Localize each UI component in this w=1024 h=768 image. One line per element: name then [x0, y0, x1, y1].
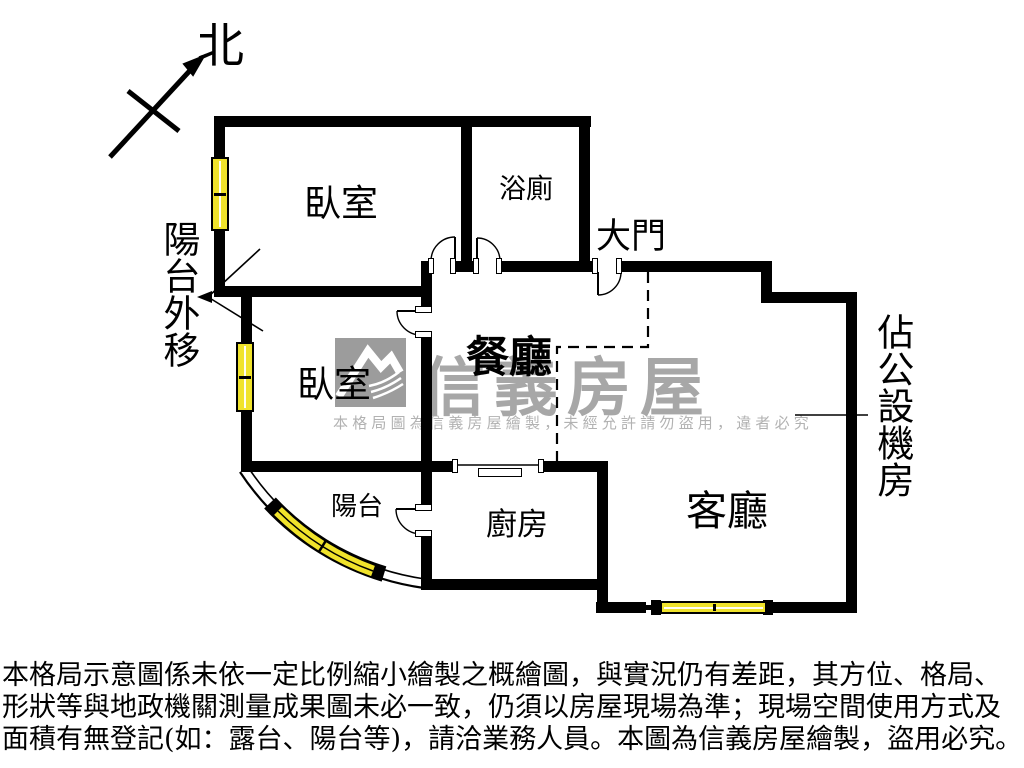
wall-segment [846, 292, 857, 613]
room-label-bathroom: 浴廁 [499, 176, 553, 204]
wall-segment [597, 461, 608, 613]
window-bedroom-1 [211, 157, 229, 231]
balcony-curved-railing [240, 467, 425, 588]
floorplan-page: 信義房屋 本格局圖為信義房屋繪製，未經允許請勿盜用，違者必究 [0, 0, 1024, 768]
room-label-bedroom-2: 臥室 [297, 366, 371, 405]
door-jamb [592, 258, 598, 274]
north-label: 北 [197, 22, 244, 71]
room-label-dining: 餐廳 [466, 336, 552, 381]
public-facility-label: 佔公設機房 [872, 313, 911, 513]
kitchen-hatch-panel [478, 468, 522, 477]
wall-segment [241, 297, 252, 344]
disclaimer-line-2: 形狀等與地政機關測量成果圖未必一致，仍須以房屋現場為準；現場空間使用方式及 [2, 692, 1024, 724]
door-jamb [415, 331, 432, 338]
wall-segment [461, 116, 472, 263]
door-jamb [616, 258, 622, 274]
wall-segment [618, 261, 767, 272]
wall-segment [214, 228, 225, 291]
main-entry-door [598, 272, 621, 295]
door-jamb [538, 459, 544, 473]
window-bedroom-2 [236, 342, 254, 412]
north-arrow-icon [110, 56, 204, 157]
wall-segment [579, 116, 590, 272]
door-jamb [428, 258, 434, 274]
door-jamb [415, 530, 432, 537]
wall-segment [214, 116, 591, 127]
door-jamb [450, 258, 456, 274]
door-jamb [473, 258, 479, 274]
room-label-balcony: 陽台 [331, 494, 383, 521]
balcony-relocated-label: 陽台外移 [158, 220, 197, 380]
wall-segment [214, 116, 225, 160]
disclaimer-line-3: 面積有無登記(如：露台、陽台等)，請洽業務人員。本圖為信義房屋繪製，盜用必究。 [2, 724, 1024, 756]
room-label-bedroom-1: 臥室 [304, 185, 378, 224]
wall-segment [770, 602, 857, 613]
disclaimer-text: 本格局示意圖係未依一定比例縮小繪製之概繪圖，與實況仍有差距，其方位、格局、 形狀… [2, 660, 1024, 756]
wall-segment [428, 461, 455, 472]
door-jamb [415, 306, 432, 313]
wall-segment [214, 286, 428, 297]
window-living-room [660, 601, 767, 614]
disclaimer-line-1: 本格局示意圖係未依一定比例縮小繪製之概繪圖，與實況仍有差距，其方位、格局、 [2, 660, 1024, 692]
main-door-label: 大門 [596, 219, 666, 256]
room-label-living: 客廳 [686, 490, 768, 533]
wall-segment [761, 292, 857, 303]
wall-segment [421, 579, 608, 590]
room-label-kitchen: 廚房 [486, 509, 548, 542]
door-jamb [452, 459, 458, 473]
area-boundary-dashed-line [557, 272, 648, 461]
wall-segment [421, 534, 432, 581]
wall-segment [241, 461, 428, 472]
wall-segment [497, 261, 591, 272]
wall-segment [540, 461, 597, 472]
wall-segment [421, 336, 432, 461]
door-jamb [415, 504, 432, 511]
wall-segment [596, 602, 646, 613]
door-jamb [496, 258, 502, 274]
